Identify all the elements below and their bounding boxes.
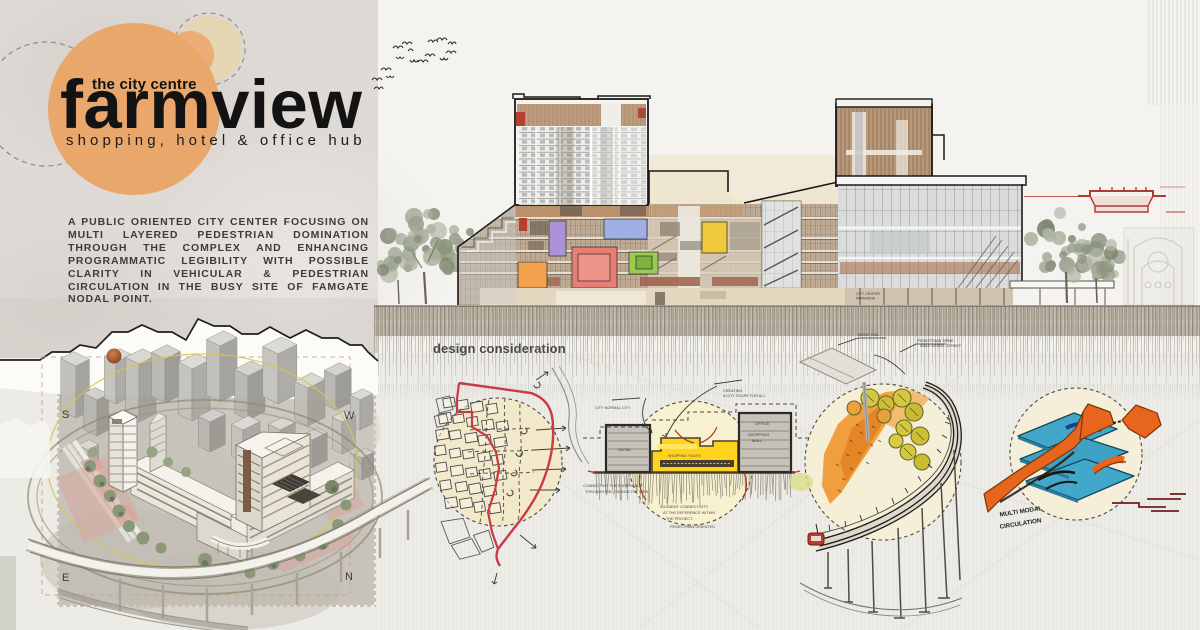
svg-text:CREATING: CREATING — [723, 389, 742, 393]
svg-text:PEDESTRIAN ORIENTED: PEDESTRIAN ORIENTED — [670, 525, 715, 529]
svg-text:E: E — [62, 572, 69, 584]
svg-text:OFFICE: OFFICE — [755, 421, 770, 426]
svg-text:MALL: MALL — [752, 438, 763, 443]
svg-text:THROUGH THE CHANGE PATTERN: THROUGH THE CHANGE PATTERN — [585, 490, 649, 494]
svg-text:N: N — [345, 571, 353, 583]
svg-text:CIRCULATION: CIRCULATION — [999, 517, 1042, 531]
svg-text:CONNECTING THE EXPERIENCE: CONNECTING THE EXPERIENCE — [583, 484, 643, 488]
svg-text:S: S — [62, 409, 69, 421]
svg-text:W: W — [344, 410, 355, 422]
svg-text:A CITY SCAPE FOR ALL: A CITY SCAPE FOR ALL — [723, 394, 766, 398]
svg-text:PEDESTRIAN SPINE: PEDESTRIAN SPINE — [917, 339, 954, 343]
svg-text:SHOPPING YOUTH: SHOPPING YOUTH — [668, 454, 701, 458]
svg-text:WALK MODEL STREET: WALK MODEL STREET — [920, 344, 962, 348]
svg-text:CITY NORMAL CITY: CITY NORMAL CITY — [595, 406, 631, 410]
svg-text:AT THE REFERENCE WITHIN: AT THE REFERENCE WITHIN — [663, 511, 715, 515]
svg-text:MONO RAIL: MONO RAIL — [858, 333, 879, 337]
svg-text:THE PROJECT.: THE PROJECT. — [666, 517, 693, 521]
svg-text:AUGMENT CONNECTIVITY: AUGMENT CONNECTIVITY — [660, 505, 709, 509]
svg-text:SHOPPING: SHOPPING — [748, 432, 769, 437]
svg-text:MULTI MODAL: MULTI MODAL — [999, 505, 1043, 519]
svg-text:HOTEL: HOTEL — [618, 447, 632, 452]
svg-text:CITY CENTER: CITY CENTER — [856, 292, 880, 296]
svg-text:FARMVIEW: FARMVIEW — [856, 297, 876, 301]
